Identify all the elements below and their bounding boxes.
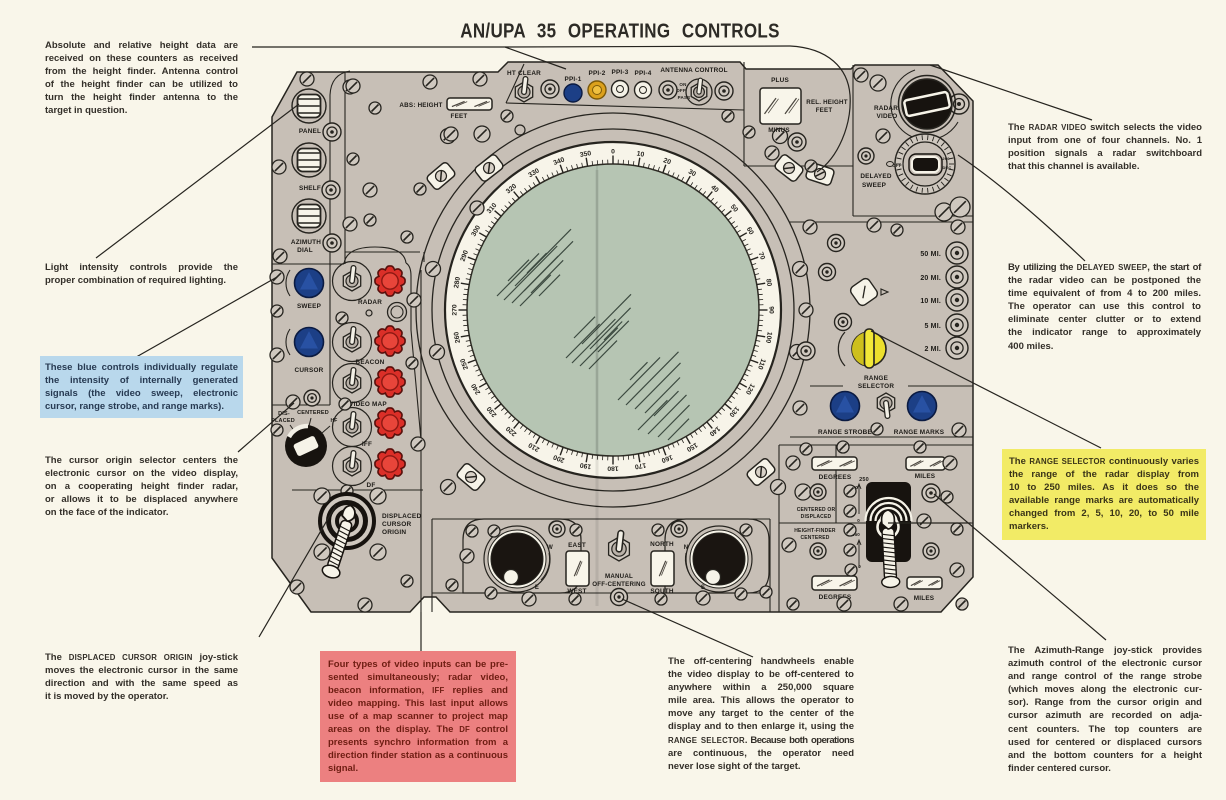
svg-text:DEGREES: DEGREES [819,474,852,481]
svg-text:ABS: HEIGHT: ABS: HEIGHT [399,102,442,109]
svg-text:PLUS: PLUS [771,77,789,84]
svg-text:DF: DF [367,482,376,489]
svg-text:CENTERED OR: CENTERED OR [797,507,836,513]
svg-text:SELECTOR: SELECTOR [858,383,894,390]
svg-text:270: 270 [452,304,459,316]
svg-text:MILES: MILES [914,595,935,602]
svg-text:80: 80 [764,278,772,287]
svg-text:50 MI.: 50 MI. [920,251,941,258]
svg-text:OFF-CENTERING: OFF-CENTERING [592,581,645,588]
svg-text:PPI-3: PPI-3 [612,69,629,76]
svg-text:SHELF: SHELF [299,185,321,192]
svg-text:VIDEO MAP: VIDEO MAP [349,401,387,408]
svg-text:HT CLEAR: HT CLEAR [507,70,541,77]
svg-text:180: 180 [607,464,619,471]
svg-text:FEET: FEET [816,107,833,114]
svg-text:DELAYED: DELAYED [860,173,892,180]
svg-text:PANEL: PANEL [299,128,321,135]
svg-text:SWEEP: SWEEP [297,303,322,310]
svg-text:FEET: FEET [451,113,468,120]
svg-text:CURSOR: CURSOR [382,521,411,528]
svg-text:RADAR: RADAR [874,105,898,112]
svg-text:ANTENNA CONTROL: ANTENNA CONTROL [660,67,727,74]
svg-text:MANUAL: MANUAL [605,573,633,580]
svg-text:HF: HF [330,418,337,424]
svg-text:EAST: EAST [568,542,586,549]
svg-text:HEIGHT-FINDER: HEIGHT-FINDER [794,528,836,534]
svg-text:PPI-1: PPI-1 [565,76,582,83]
svg-text:MINUS: MINUS [768,127,790,134]
svg-text:RANGE: RANGE [864,375,889,382]
svg-text:NORTH: NORTH [650,541,674,548]
svg-text:0: 0 [857,518,860,523]
svg-text:VIDEO: VIDEO [877,113,898,120]
svg-text:E: E [535,585,539,591]
svg-text:90: 90 [767,306,774,314]
svg-text:ON: ON [679,82,686,87]
svg-text:PPI-2: PPI-2 [589,70,606,77]
svg-text:DISPLACED: DISPLACED [801,514,832,520]
svg-text:DEC: DEC [942,165,951,170]
svg-text:MILES: MILES [915,473,936,480]
svg-text:CURSOR: CURSOR [295,367,324,374]
svg-text:PPI-4: PPI-4 [635,70,652,77]
svg-text:DISPLACED: DISPLACED [382,513,421,520]
svg-text:0: 0 [611,149,615,156]
svg-text:5 MI.: 5 MI. [924,323,941,330]
svg-text:2 MI.: 2 MI. [924,346,941,353]
svg-text:DIAL: DIAL [297,247,313,254]
svg-text:250: 250 [859,477,869,483]
svg-text:ORIGIN: ORIGIN [382,529,406,536]
svg-text:PLACED: PLACED [271,418,295,424]
svg-text:10 MI.: 10 MI. [920,298,941,305]
svg-text:CENTERED: CENTERED [297,410,329,416]
svg-text:S: S [701,585,705,591]
svg-text:W: W [547,545,553,551]
svg-text:10: 10 [636,150,645,158]
svg-text:20 MI.: 20 MI. [920,275,941,282]
svg-text:REL. HEIGHT: REL. HEIGHT [806,99,847,106]
svg-text:OFF: OFF [676,88,686,93]
svg-text:N: N [684,545,689,551]
svg-text:RADAR: RADAR [358,299,382,306]
svg-text:200: 200 [942,156,950,161]
svg-text:RANGE MARKS: RANGE MARKS [894,429,945,436]
svg-text:IFF: IFF [362,441,372,448]
svg-text:SWEEP: SWEEP [862,182,887,189]
svg-text:CENTERED: CENTERED [800,535,829,541]
svg-text:AZIMUTH: AZIMUTH [291,239,321,246]
svg-text:RANGE STROBE: RANGE STROBE [818,429,872,436]
